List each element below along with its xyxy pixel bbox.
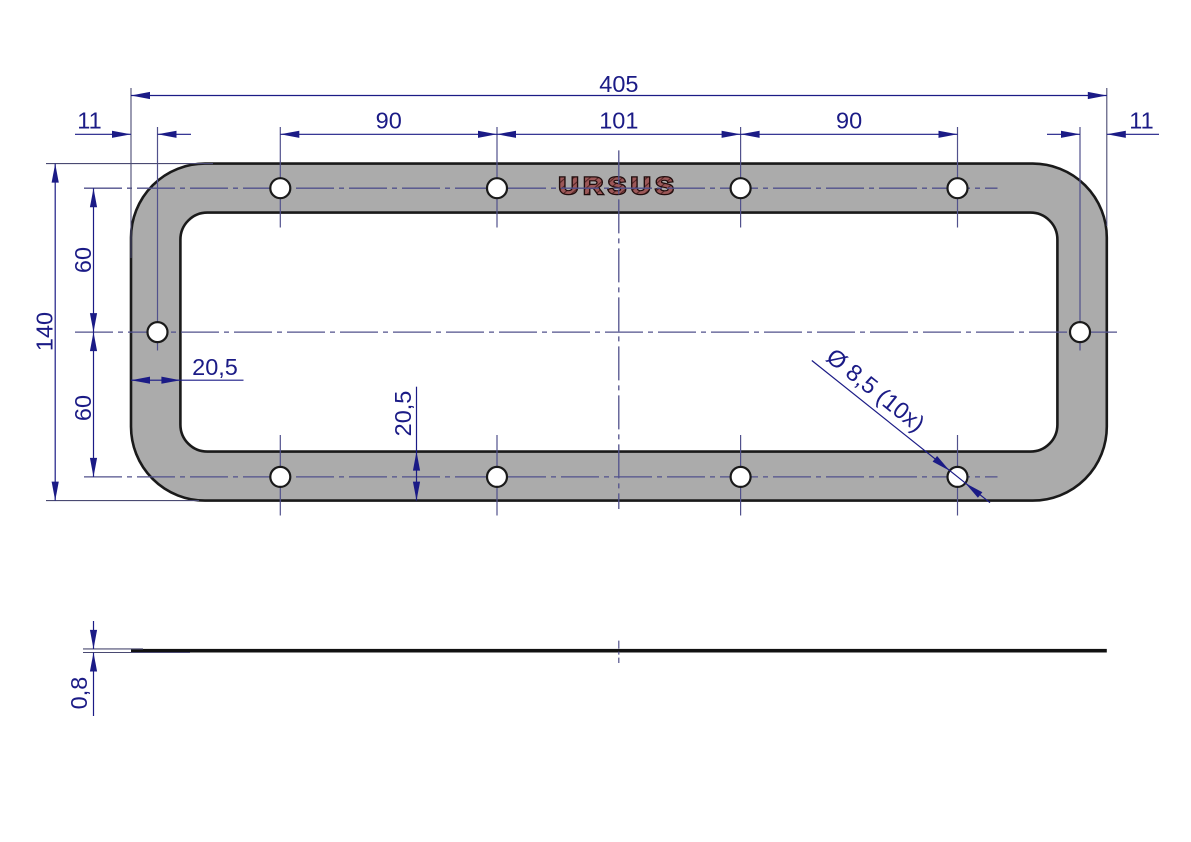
svg-text:11: 11	[77, 108, 101, 134]
svg-text:140: 140	[32, 312, 58, 351]
svg-text:90: 90	[376, 108, 402, 134]
svg-text:405: 405	[599, 71, 638, 97]
svg-text:90: 90	[836, 108, 862, 134]
svg-text:20,5: 20,5	[390, 391, 416, 437]
svg-text:11: 11	[1129, 108, 1153, 134]
svg-text:20,5: 20,5	[192, 354, 238, 380]
svg-text:0,8: 0,8	[66, 677, 92, 710]
svg-text:60: 60	[70, 395, 96, 421]
svg-text:101: 101	[599, 108, 638, 134]
svg-text:60: 60	[70, 247, 96, 273]
